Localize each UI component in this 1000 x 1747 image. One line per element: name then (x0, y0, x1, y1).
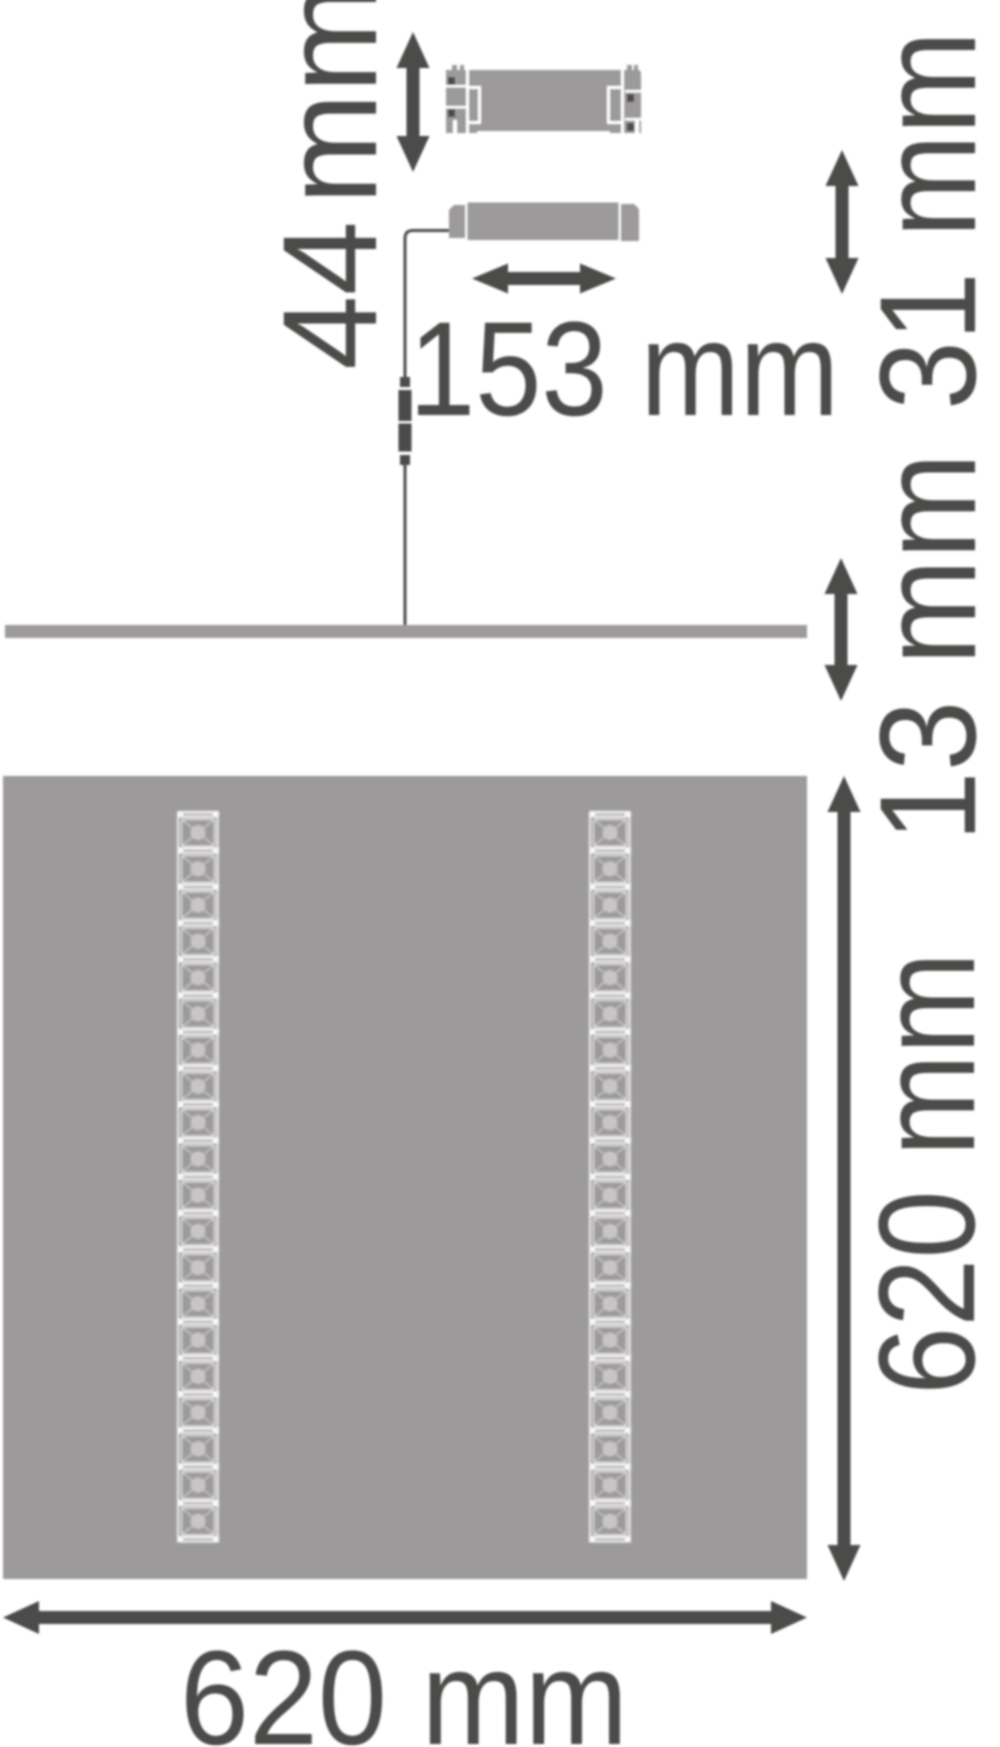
svg-text:153 mm: 153 mm (409, 295, 839, 444)
svg-text:31 mm: 31 mm (852, 31, 1000, 410)
svg-text:620 mm: 620 mm (180, 1624, 628, 1747)
svg-text:13 mm: 13 mm (852, 453, 1000, 842)
svg-text:620 mm: 620 mm (851, 952, 1000, 1395)
svg-text:44 mm: 44 mm (256, 0, 405, 370)
